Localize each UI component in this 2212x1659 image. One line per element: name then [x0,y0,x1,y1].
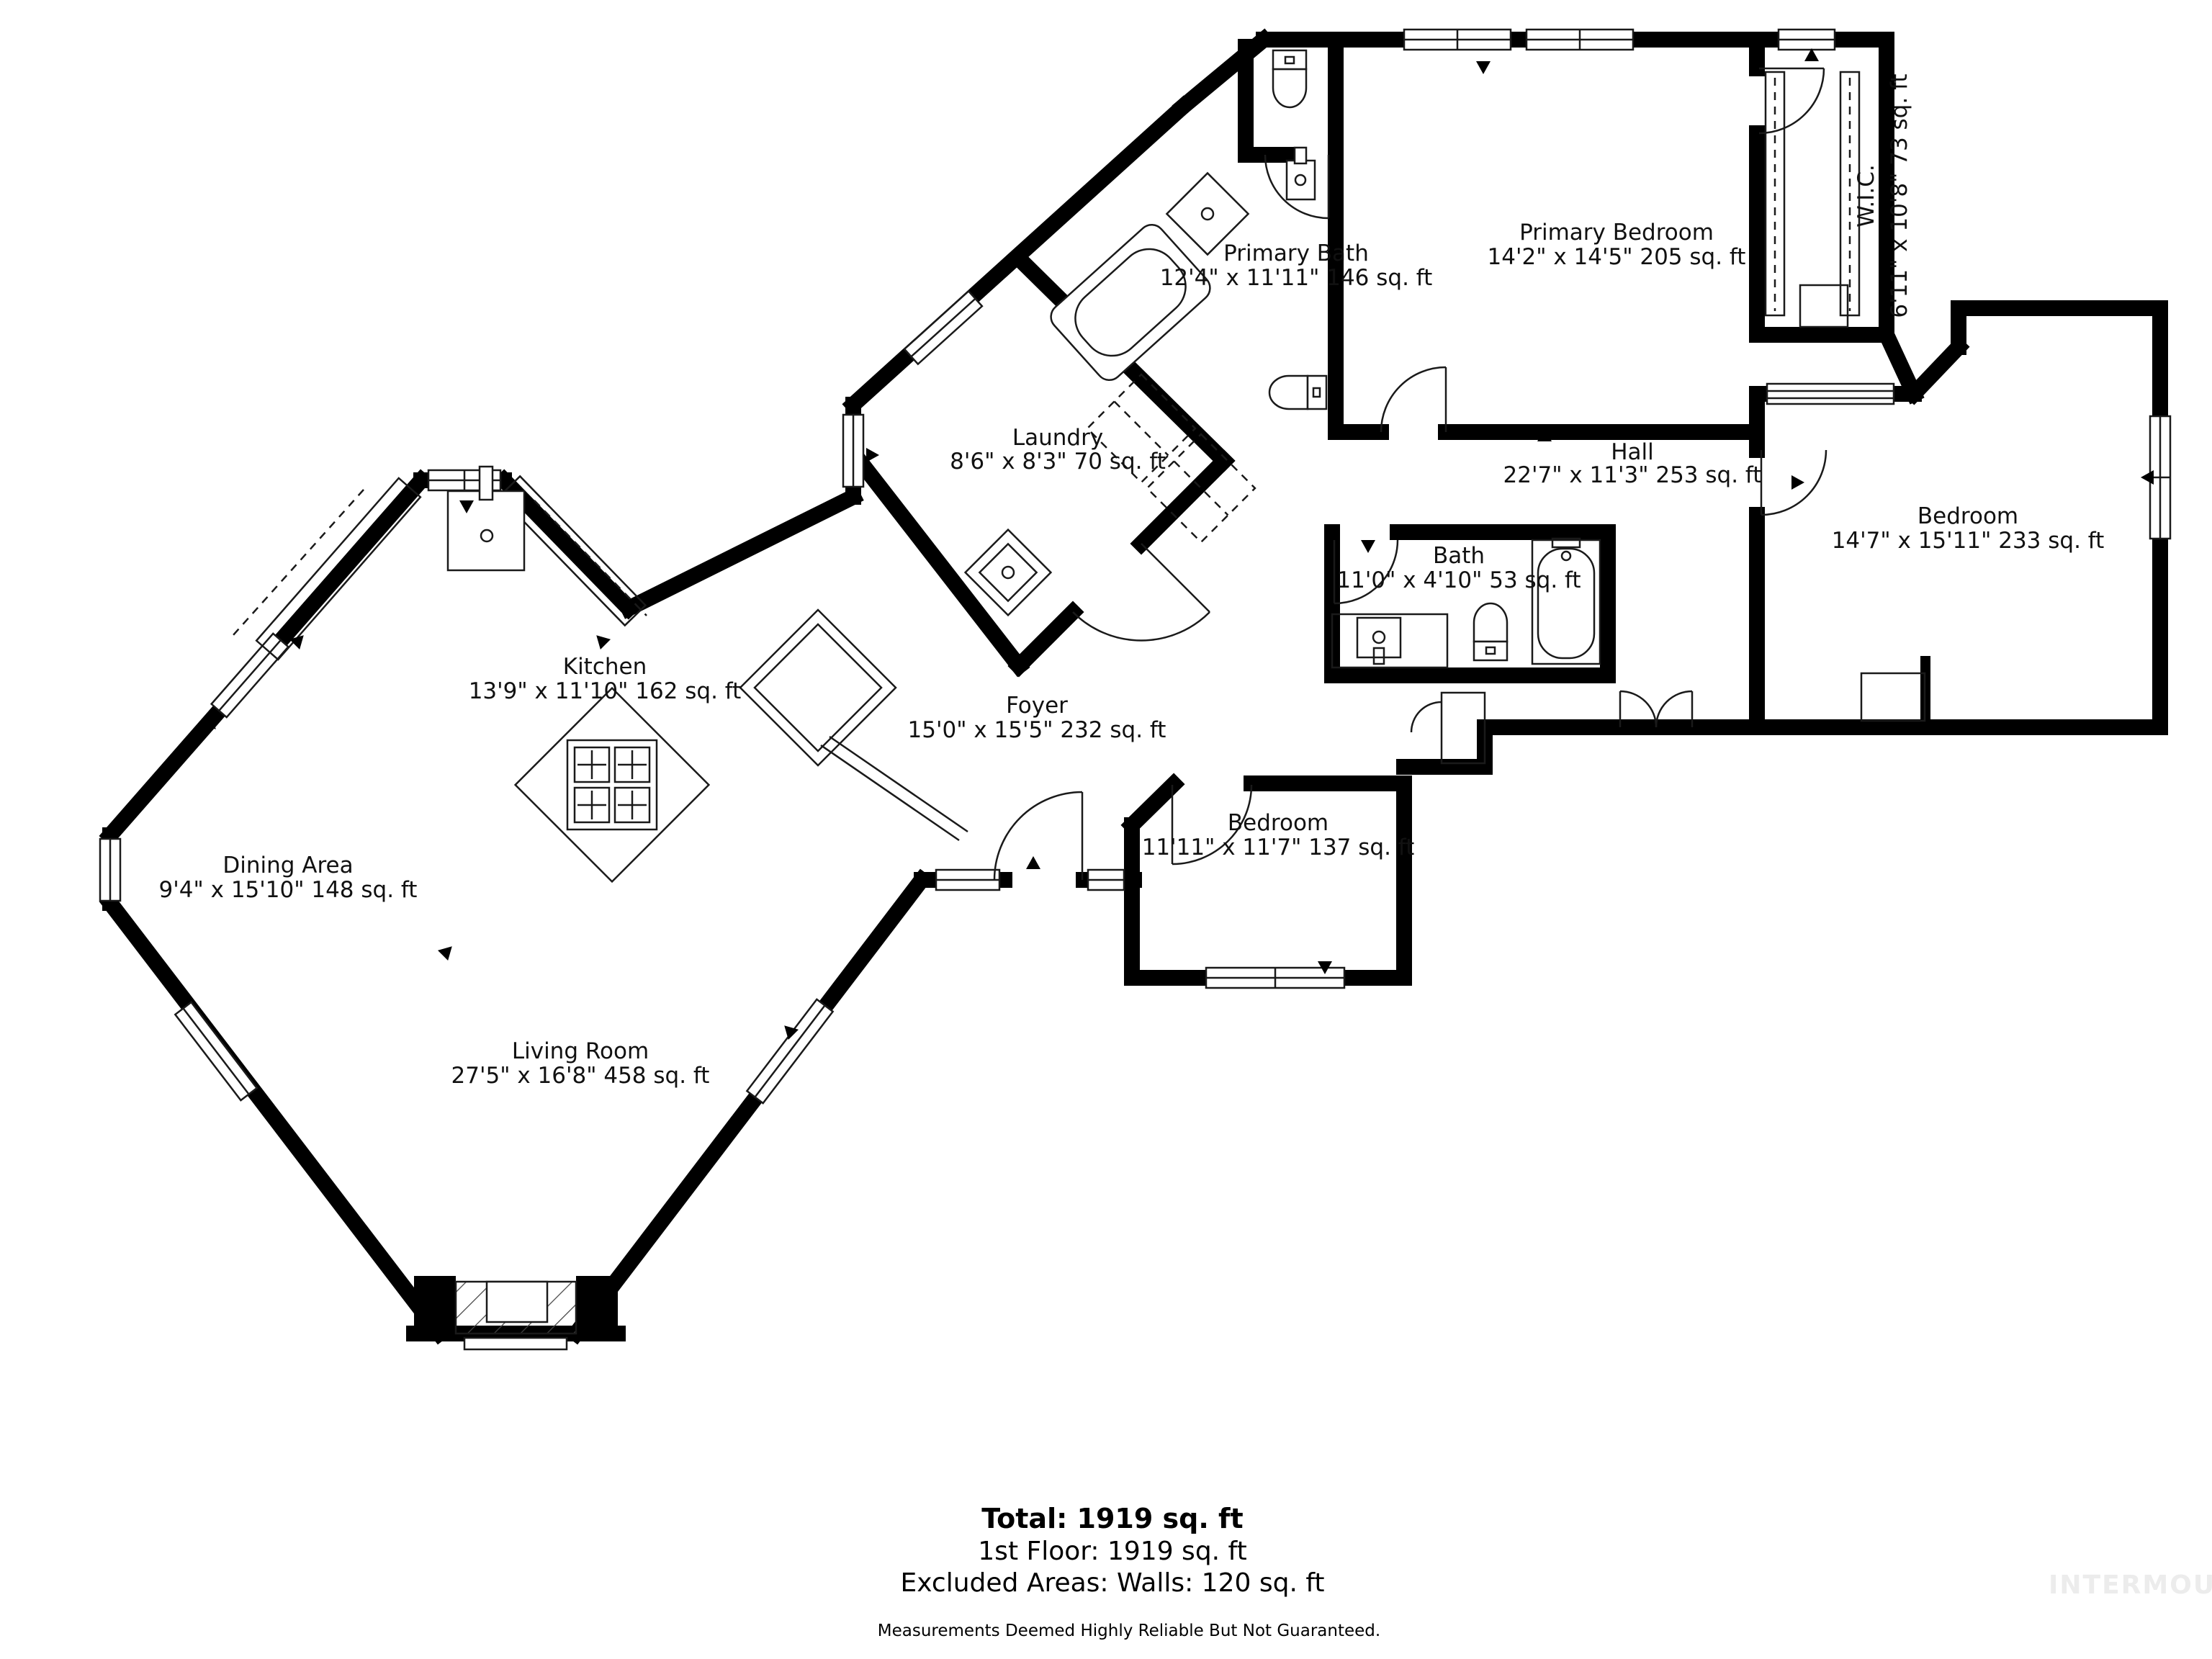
window-symbol [1527,30,1633,50]
room-dims: 15'0" x 15'5" 232 sq. ft [908,717,1166,743]
room-dims: 11'0" x 4'10" 53 sq. ft [1336,567,1581,593]
disclaimer-text: Measurements Deemed Highly Reliable But … [878,1622,1380,1640]
total-area-text: Total: 1919 sq. ft [981,1503,1243,1534]
window-symbol [100,839,120,901]
room-name: Dining Area [222,853,353,878]
room-name: Kitchen [563,654,647,680]
window-symbol [1088,870,1124,890]
room-name: Bath [1433,543,1485,569]
room-dims: 6'11" x 10'8" 73 sq. ft [1887,73,1912,318]
room-dims: 14'2" x 14'5" 205 sq. ft [1488,244,1746,270]
room-dims: 22'7" x 11'3" 253 sq. ft [1503,462,1762,488]
closet-slider-symbol [1767,384,1894,404]
room-dims: 12'4" x 11'11" 146 sq. ft [1160,265,1433,291]
room-dims: 14'7" x 15'11" 233 sq. ft [1832,528,2105,554]
window-symbol [1404,30,1511,50]
room-name: Bedroom [1228,810,1328,836]
watermark: INTERMOUNTAIN [2049,1570,2212,1600]
toilet-icon [1273,50,1306,107]
room-label-primary-bedroom: Primary Bedroom 14'2" x 14'5" 205 sq. ft [1488,220,1746,270]
floor-plan-canvas: Primary Bath 12'4" x 11'11" 146 sq. ft P… [0,0,2212,1659]
window-symbol [1779,30,1835,50]
room-dims: 9'4" x 15'10" 148 sq. ft [159,877,418,903]
room-name: Primary Bedroom [1519,220,1714,246]
room-name: Foyer [1006,693,1068,719]
room-dims: 27'5" x 16'8" 458 sq. ft [451,1063,710,1089]
toilet-icon [1474,603,1507,660]
window-symbol [936,870,999,890]
room-dims: 11'11" x 11'7" 137 sq. ft [1142,835,1415,860]
room-name: Bedroom [1917,503,2018,529]
room-name: Hall [1611,439,1654,465]
room-name: W.I.C. [1853,164,1879,227]
room-name: Laundry [1012,425,1103,451]
first-floor-area-text: 1st Floor: 1919 sq. ft [978,1537,1246,1566]
toilet-icon [1269,376,1326,409]
window-symbol [843,415,863,487]
room-dims: 13'9" x 11'10" 162 sq. ft [469,678,742,704]
excluded-area-text: Excluded Areas: Walls: 120 sq. ft [901,1568,1325,1598]
room-dims: 8'6" x 8'3" 70 sq. ft [950,449,1166,475]
room-name: Primary Bath [1223,240,1369,266]
room-name: Living Room [512,1038,649,1064]
